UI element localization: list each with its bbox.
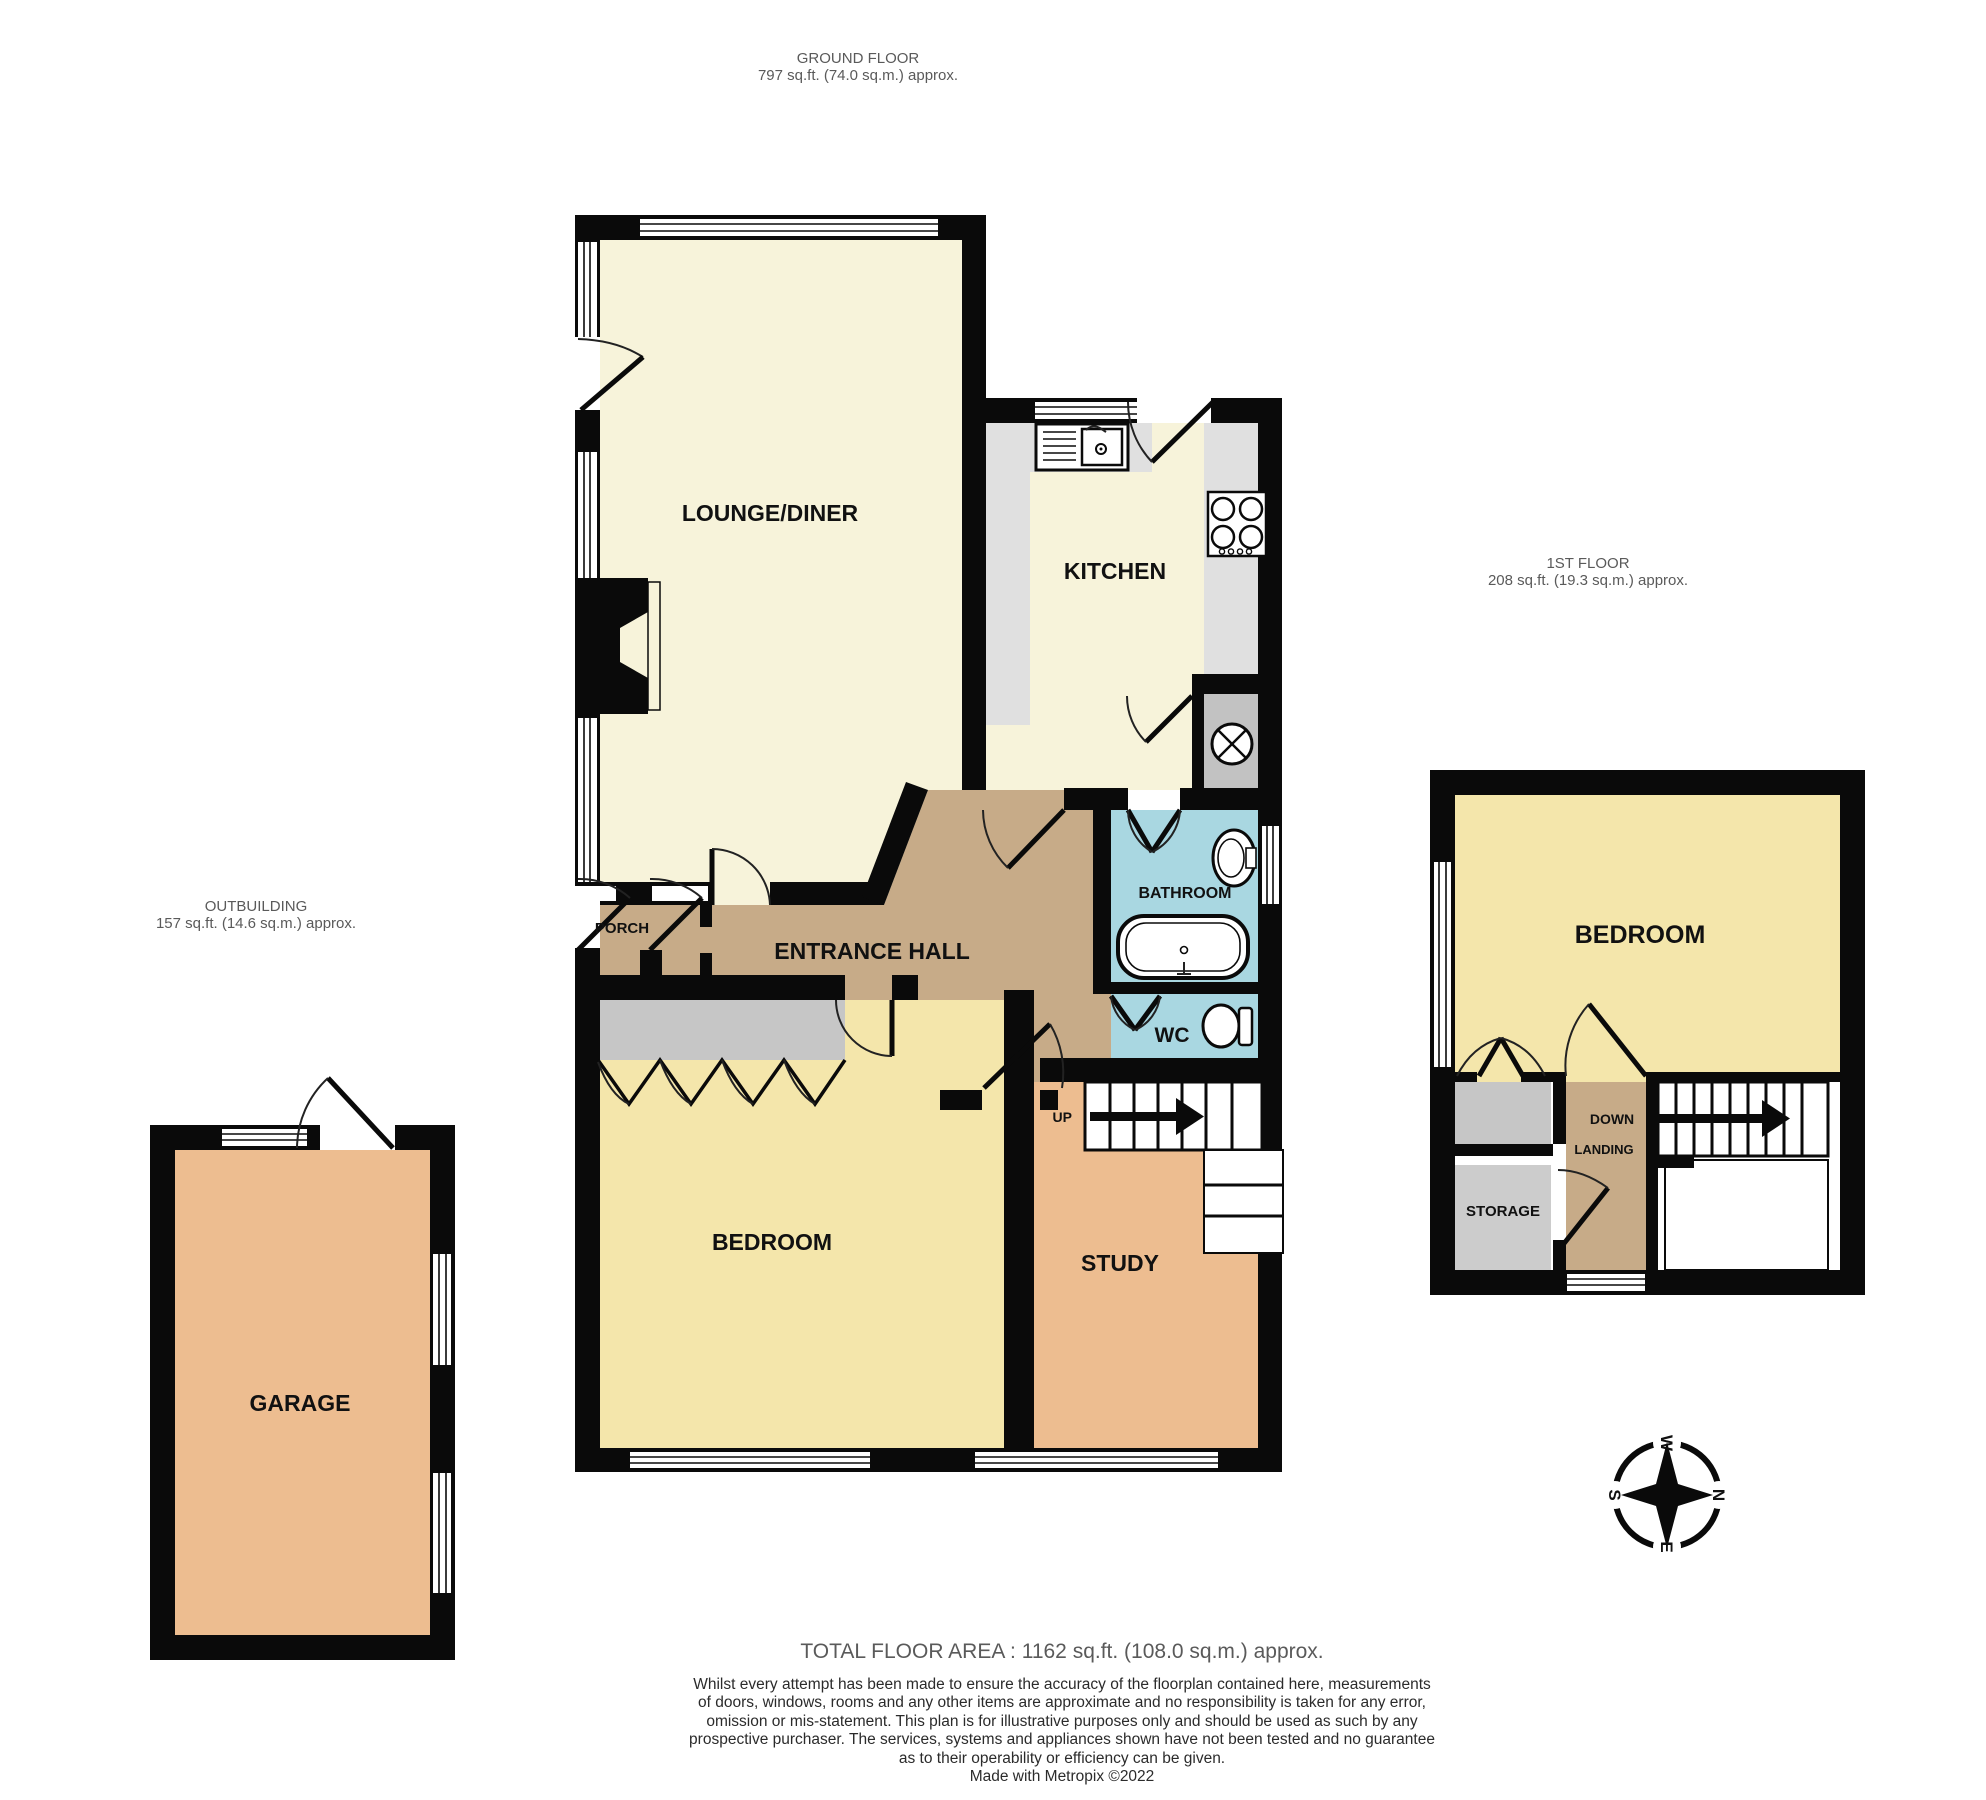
bedroom-ground-window (630, 1452, 870, 1468)
disclaimer-line: of doors, windows, rooms and any other i… (512, 1694, 1612, 1712)
label-study: STUDY (1081, 1250, 1159, 1276)
label-kitchen: KITCHEN (1064, 558, 1166, 584)
toilet-icon (1203, 1005, 1252, 1047)
first-floor-plan: BEDROOM DOWN LANDING STORAGE (1430, 770, 1865, 1295)
compass-north: N (1709, 1489, 1728, 1501)
lounge-left-window-1 (578, 242, 597, 337)
first-bedroom-window (1434, 862, 1451, 1067)
label-down: DOWN (1590, 1111, 1634, 1127)
ground-floor-plan: LOUNGE/DINER KITCHEN ENTRANCE HALL PORCH… (575, 215, 1283, 1472)
compass-east: E (1657, 1541, 1676, 1552)
disclaimer-line: Whilst every attempt has been made to en… (512, 1676, 1612, 1694)
lounge-left-window-2 (578, 452, 597, 578)
room-bedroom-ground (598, 1000, 1004, 1448)
lounge-top-window (640, 219, 938, 236)
compass-south: S (1605, 1489, 1624, 1500)
first-wardrobe (1455, 1082, 1551, 1153)
landing-window (1567, 1274, 1645, 1291)
stairs-down (1650, 1082, 1828, 1270)
compass-rose: W N E S (1601, 1429, 1733, 1561)
disclaimer-line: prospective purchaser. The services, sys… (512, 1731, 1612, 1749)
porch-top-gap-1 (588, 886, 616, 901)
kitchen-counter-left (986, 420, 1030, 725)
floorplan-canvas: GROUND FLOOR 797 sq.ft. (74.0 sq.m.) app… (0, 0, 1986, 1800)
bathtub-icon (1118, 916, 1248, 978)
lounge-left-window-3 (578, 718, 597, 882)
kitchen-door-gap (1137, 398, 1211, 423)
hob-icon (1208, 492, 1266, 556)
bathroom-basin-icon (1213, 830, 1256, 886)
label-storage: STORAGE (1466, 1203, 1540, 1220)
label-bedroom-ground: BEDROOM (712, 1229, 832, 1255)
kitchen-top-window (1035, 402, 1137, 419)
kitchen-sink-icon (1036, 424, 1128, 470)
label-landing: LANDING (1574, 1142, 1633, 1157)
label-garage: GARAGE (250, 1390, 351, 1416)
label-entrance-hall: ENTRANCE HALL (774, 938, 970, 964)
label-up: UP (1053, 1109, 1072, 1125)
label-wc: WC (1155, 1024, 1190, 1047)
total-floor-area: TOTAL FLOOR AREA : 1162 sq.ft. (108.0 sq… (512, 1640, 1612, 1664)
appliance-icon (1212, 724, 1252, 764)
disclaimer: Whilst every attempt has been made to en… (512, 1676, 1612, 1786)
compass-west: W (1657, 1435, 1676, 1452)
label-lounge: LOUNGE/DINER (682, 500, 859, 526)
garage-plan: GARAGE (150, 1078, 455, 1660)
label-bedroom-first: BEDROOM (1575, 921, 1706, 949)
label-bathroom: BATHROOM (1138, 885, 1231, 902)
floorplan-drawing: LOUNGE/DINER KITCHEN ENTRANCE HALL PORCH… (0, 0, 1986, 1800)
disclaimer-line: omission or mis-statement. This plan is … (512, 1713, 1612, 1731)
study-window (975, 1452, 1218, 1468)
bathroom-window (1262, 826, 1279, 904)
disclaimer-line: as to their operability or efficiency ca… (512, 1750, 1612, 1768)
garage-right-window-2 (433, 1473, 451, 1593)
label-porch: PORCH (595, 920, 649, 937)
garage-top-window (222, 1129, 307, 1146)
garage-right-window-1 (433, 1254, 451, 1365)
credit-line: Made with Metropix ©2022 (512, 1768, 1612, 1786)
bedroom-wardrobe (598, 1000, 845, 1060)
footer: TOTAL FLOOR AREA : 1162 sq.ft. (108.0 sq… (512, 1640, 1612, 1786)
